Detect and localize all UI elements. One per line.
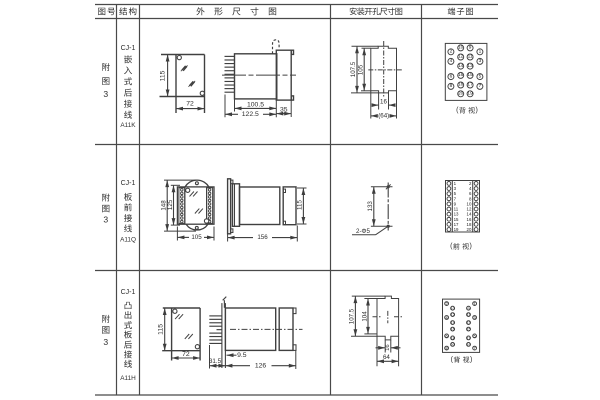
svg-text:A11Q: A11Q: [120, 237, 136, 244]
svg-text:CJ-1: CJ-1: [121, 180, 136, 187]
svg-text:115: 115: [160, 70, 167, 81]
svg-text:(: (: [456, 107, 459, 114]
svg-text:12: 12: [458, 54, 464, 60]
svg-text:(: (: [450, 243, 453, 250]
svg-text:16: 16: [458, 72, 464, 78]
svg-text:7: 7: [474, 346, 476, 351]
svg-text:15: 15: [467, 72, 473, 78]
svg-text:107.5: 107.5: [349, 308, 356, 324]
svg-text:19: 19: [467, 91, 473, 97]
svg-text:): ): [470, 356, 472, 363]
svg-text:9.5: 9.5: [237, 352, 247, 359]
svg-text:156: 156: [257, 234, 268, 241]
svg-text:107.5: 107.5: [350, 61, 357, 77]
svg-text:31.5: 31.5: [209, 358, 222, 365]
svg-text:2: 2: [450, 49, 453, 55]
svg-text:125: 125: [167, 199, 174, 210]
svg-text:122.5: 122.5: [242, 111, 259, 118]
svg-text:6: 6: [450, 73, 453, 79]
svg-text:8: 8: [450, 83, 453, 89]
svg-text:3: 3: [474, 315, 476, 320]
svg-text:17: 17: [466, 336, 470, 341]
svg-text:104: 104: [361, 311, 368, 322]
svg-text:5: 5: [474, 334, 476, 339]
svg-text:64: 64: [383, 354, 390, 361]
svg-text:19: 19: [454, 227, 459, 232]
svg-text:12: 12: [450, 312, 454, 317]
svg-text:CJ-1: CJ-1: [121, 45, 136, 52]
svg-text:72: 72: [182, 351, 190, 358]
svg-text:6: 6: [446, 334, 448, 339]
svg-text:): ): [476, 107, 478, 114]
svg-text:1: 1: [474, 301, 476, 306]
svg-text:20: 20: [467, 227, 472, 232]
svg-text:A11K: A11K: [120, 122, 136, 129]
svg-text:1: 1: [479, 49, 482, 55]
svg-text:CJ-1: CJ-1: [121, 289, 136, 296]
svg-text:35: 35: [280, 106, 288, 113]
svg-text:105: 105: [358, 64, 365, 75]
svg-text:72: 72: [186, 101, 194, 108]
svg-text:A11H: A11H: [120, 375, 136, 382]
svg-text:2: 2: [446, 301, 448, 306]
svg-text:19: 19: [466, 342, 470, 347]
svg-text:16: 16: [450, 327, 454, 332]
svg-text:3: 3: [103, 337, 108, 347]
svg-text:100.5: 100.5: [247, 101, 264, 108]
svg-text:14: 14: [458, 63, 464, 69]
svg-text:9: 9: [469, 45, 472, 51]
svg-text:3: 3: [103, 89, 108, 99]
svg-text:8: 8: [446, 346, 448, 351]
svg-text:115: 115: [158, 324, 165, 335]
svg-text:13: 13: [467, 63, 473, 69]
svg-text:15: 15: [466, 327, 470, 332]
svg-text:16: 16: [385, 344, 391, 350]
svg-text:133: 133: [367, 201, 374, 212]
svg-text:3: 3: [479, 58, 482, 64]
svg-text:18: 18: [458, 82, 464, 88]
svg-text:17: 17: [467, 82, 473, 88]
svg-text:4: 4: [450, 58, 453, 64]
svg-text:): ): [470, 243, 472, 250]
svg-text:11: 11: [468, 54, 473, 60]
svg-text:(64): (64): [378, 113, 389, 120]
svg-text:5: 5: [479, 73, 482, 79]
svg-text:3: 3: [103, 215, 108, 225]
svg-text:7: 7: [479, 83, 482, 89]
svg-text:16: 16: [380, 98, 387, 105]
svg-text:13: 13: [466, 320, 470, 325]
svg-text:18: 18: [450, 336, 454, 341]
svg-text:105: 105: [191, 234, 202, 241]
svg-text:115: 115: [297, 200, 304, 210]
svg-text:(: (: [451, 356, 454, 363]
svg-text:20: 20: [458, 91, 464, 97]
svg-text:10: 10: [458, 45, 464, 51]
svg-text:11: 11: [466, 312, 470, 317]
svg-text:126: 126: [255, 362, 267, 369]
svg-text:2-Φ5: 2-Φ5: [356, 228, 370, 235]
svg-text:9: 9: [467, 306, 469, 311]
